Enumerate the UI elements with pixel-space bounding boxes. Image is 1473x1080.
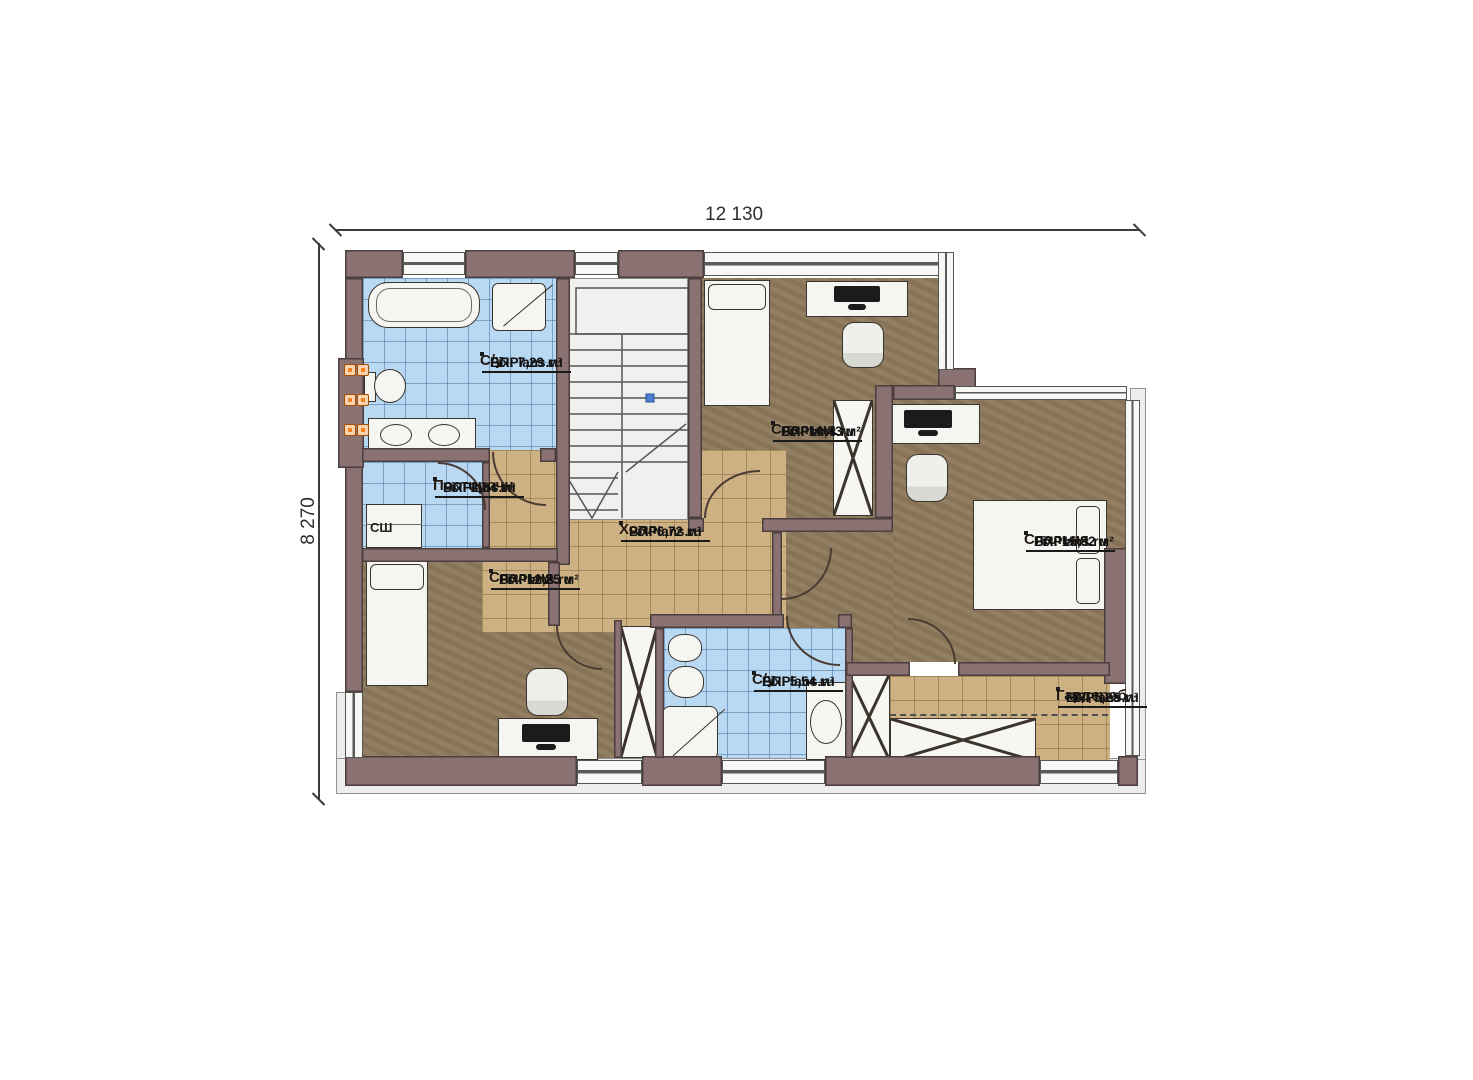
- wall-segment: [614, 620, 622, 758]
- dimension-line-top: [335, 229, 1140, 231]
- pillow: [708, 284, 766, 310]
- wall-segment: [1118, 756, 1138, 786]
- stairs: [556, 276, 704, 536]
- window: [722, 760, 825, 784]
- wall-segment: [958, 662, 1110, 676]
- wardrobe-dashed-line: [890, 714, 1108, 716]
- shower-top: [492, 283, 546, 331]
- wardrobe-closet: [620, 626, 658, 758]
- window: [575, 252, 618, 275]
- wall-segment: [642, 756, 722, 786]
- wall-segment: [688, 278, 702, 518]
- room-info-box: FixPlans.ru ВП: 7,29 м²: [480, 352, 484, 356]
- dimension-height: 8 270: [298, 497, 320, 545]
- wardrobe-closet: [833, 400, 873, 516]
- room-info-box: FixPlans.ru ВП: 15,92 м²: [1024, 531, 1028, 535]
- wall-segment: [556, 278, 570, 565]
- sink-bowl: [380, 424, 412, 446]
- room-info-box: FixPlans.ru ВП: 10,43 м²: [771, 421, 775, 425]
- pillow: [370, 564, 424, 590]
- wall-segment: [845, 628, 853, 758]
- dimension-line-left: [318, 243, 320, 799]
- wall-segment: [362, 448, 490, 462]
- computer: [904, 410, 952, 428]
- towel-radiator: [344, 364, 356, 376]
- room-info-box: FixPlans.ru ВП: 5,25 м²: [1056, 687, 1060, 691]
- computer-stand: [536, 744, 556, 750]
- room-area: ВП: 12,25 м²: [491, 571, 587, 588]
- window: [577, 760, 642, 784]
- shower-bottom: [662, 706, 718, 760]
- wall-segment: [655, 628, 664, 758]
- wall-segment: [345, 250, 403, 278]
- wall-segment: [846, 662, 910, 676]
- wall-segment: [762, 518, 893, 532]
- window-band: [955, 386, 1127, 400]
- wall-segment: [875, 385, 893, 518]
- room-area: ВП: 15,92 м²: [1026, 533, 1122, 550]
- towel-radiator: [344, 424, 356, 436]
- computer-stand: [918, 430, 938, 436]
- wall-segment: [825, 756, 1040, 786]
- bathtub-inner: [376, 288, 472, 322]
- pillow: [1076, 558, 1100, 604]
- window-band: [704, 252, 940, 276]
- wall-segment: [345, 756, 577, 786]
- office-chair: [526, 668, 568, 716]
- sink-bowl: [810, 700, 842, 744]
- bidet: [668, 634, 702, 662]
- window: [345, 692, 363, 758]
- dimension-width: 12 130: [705, 204, 763, 226]
- computer: [834, 286, 880, 302]
- wall-segment: [893, 385, 955, 400]
- wall-segment: [465, 250, 575, 278]
- room-area: ВП: 5,54 м²: [754, 673, 842, 690]
- sink-bowl: [428, 424, 460, 446]
- window-band: [938, 252, 954, 370]
- towel-radiator: [357, 394, 369, 406]
- computer-stand: [848, 304, 866, 310]
- window: [1040, 760, 1118, 784]
- wardrobe-closet: [848, 674, 890, 760]
- room-info-box: FixPlans.ru ВП: 12,25 м²: [489, 569, 493, 573]
- window: [403, 252, 465, 275]
- office-chair: [842, 322, 884, 368]
- wall-segment: [650, 614, 784, 628]
- room-info-box: FixPlans.ru ВП: 5,54 м²: [752, 671, 756, 675]
- floor-plan: С/у FixPlans.ru ВП: 7,29 м² Постирочн Fi…: [0, 0, 1473, 1080]
- office-chair: [906, 454, 948, 502]
- room-info-box: FixPlans.ru ВП: 6,72 м²: [619, 521, 623, 525]
- room-area: ВП: 5,25 м²: [1058, 689, 1146, 706]
- wall-segment: [772, 532, 782, 620]
- wall-segment: [618, 250, 704, 278]
- towel-radiator: [357, 364, 369, 376]
- toilet-top: [374, 369, 406, 403]
- room-area: ВП: 6,72 м²: [621, 523, 709, 540]
- toilet-bottom: [668, 666, 704, 698]
- room-area: ВП: 7,29 м²: [482, 354, 570, 371]
- wall-segment: [345, 278, 363, 692]
- towel-radiator: [357, 424, 369, 436]
- wall-segment: [838, 614, 852, 628]
- laundry-appliance-note: СШ: [370, 520, 392, 535]
- room-area: ВП: 10,43 м²: [773, 423, 869, 440]
- room-info-box: FixPlans.ru ВП: 2,84 м²: [433, 477, 437, 481]
- room-area: ВП: 2,84 м²: [435, 479, 523, 496]
- wall-segment: [362, 548, 558, 562]
- towel-radiator: [344, 394, 356, 406]
- computer: [522, 724, 570, 742]
